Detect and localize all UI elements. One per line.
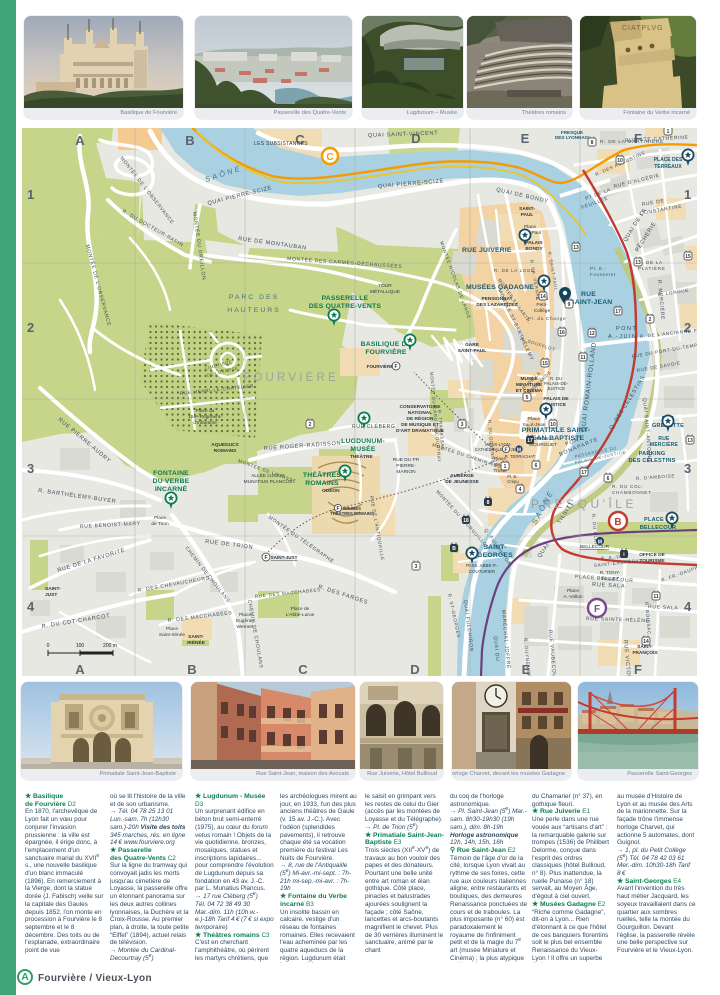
svg-text:4: 4 [519,487,522,493]
svg-text:1: 1 [684,187,691,202]
svg-text:de Trion: de Trion [151,521,169,527]
svg-text:Place de: Place de [291,606,310,612]
svg-text:10: 10 [550,422,556,428]
svg-text:AUBERGE: AUBERGE [450,473,475,479]
svg-text:9: 9 [568,302,571,308]
svg-text:SAINT-JEAN: SAINT-JEAN [570,299,612,306]
svg-text:A.-Vollon: A.-Vollon [563,594,583,600]
svg-text:3: 3 [415,564,418,570]
svg-text:15: 15 [685,254,691,260]
svg-text:OFFICE DE: OFFICE DE [639,552,665,558]
svg-text:TOUR: TOUR [378,283,392,289]
svg-text:18: 18 [463,518,469,524]
svg-text:ROMAINS: ROMAINS [305,480,339,487]
svg-text:JUST: JUST [45,592,57,598]
svg-text:L'Abbé-Larue: L'Abbé-Larue [286,612,315,618]
svg-text:1: 1 [27,187,34,202]
svg-text:E: E [521,131,530,146]
svg-text:4: 4 [684,599,692,614]
svg-text:PIERRE-: PIERRE- [396,463,416,469]
svg-text:ALLÉE LUCIUS: ALLÉE LUCIUS [251,472,285,479]
svg-text:JEAN-BAPTISTE: JEAN-BAPTISTE [528,435,585,442]
svg-text:Place: Place [239,612,251,618]
svg-text:SAINT-: SAINT- [483,544,506,551]
svg-text:A: A [75,133,85,148]
svg-text:SAINT-PAUL: SAINT-PAUL [458,348,486,354]
svg-text:LUGDUNUM-: LUGDUNUM- [341,438,385,445]
svg-text:1: 1 [504,464,507,470]
svg-text:MÉTALLIQUE: MÉTALLIQUE [370,288,400,295]
svg-text:A.-JUIN: A.-JUIN [608,334,637,340]
svg-text:6: 6 [607,476,610,482]
svg-text:14: 14 [540,294,546,300]
svg-text:17: 17 [581,470,587,476]
svg-text:PAUL: PAUL [521,212,534,218]
svg-text:BELLECOUR: BELLECOUR [580,544,610,550]
svg-text:CIATPLVG: CIATPLVG [622,25,664,32]
svg-text:4: 4 [27,599,35,614]
svg-text:PALAIS: PALAIS [525,240,543,246]
svg-text:DES QUATRE-VENTS: DES QUATRE-VENTS [309,303,381,310]
svg-text:DU VERBE: DU VERBE [153,478,190,485]
svg-text:17: 17 [527,438,533,444]
svg-text:200 m: 200 m [103,643,117,649]
svg-text:13: 13 [573,245,579,251]
svg-text:FOURVIÈRE: FOURVIÈRE [243,371,339,384]
svg-text:A: A [75,662,85,676]
svg-text:Place: Place [567,588,579,594]
svg-text:C: C [326,152,333,163]
svg-text:SAINT-JUST: SAINT-JUST [271,555,298,560]
svg-text:MERCIÈRE: MERCIÈRE [650,440,678,448]
svg-text:MINIATURE: MINIATURE [516,382,543,388]
svg-text:F: F [594,604,600,615]
svg-text:8: 8 [591,140,594,146]
svg-text:Place: Place [528,416,540,422]
svg-text:M: M [517,448,521,454]
svg-text:Petit-: Petit- [536,302,548,308]
svg-text:PARC DES: PARC DES [229,294,279,301]
svg-text:2: 2 [649,317,652,323]
svg-text:14: 14 [643,639,649,645]
svg-text:6: 6 [535,463,538,469]
svg-text:13: 13 [635,260,641,266]
svg-text:M: M [598,540,602,546]
svg-text:F: F [394,364,397,370]
svg-text:PASS. ABBÉ-P.-: PASS. ABBÉ-P.- [466,563,498,568]
svg-text:PLACE DES: PLACE DES [654,157,683,163]
svg-text:CATHÉDRALE-ST-JEAN: CATHÉDRALE-ST-JEAN [475,447,521,452]
svg-text:MUNATIUS PLANCUS: MUNATIUS PLANCUS [244,479,293,485]
svg-text:PONT: PONT [616,326,637,332]
svg-text:11: 11 [580,355,586,361]
svg-text:B: B [452,546,456,552]
svg-text:PLATIÈRE: PLATIÈRE [638,265,665,271]
svg-text:BELLECOUR: BELLECOUR [640,525,677,531]
svg-text:DES LAZARISTES: DES LAZARISTES [476,302,518,308]
svg-text:HAUTEURS: HAUTEURS [227,307,280,314]
svg-text:R. TONY-: R. TONY- [600,570,621,576]
svg-text:d'Infanterie: d'Infanterie [193,420,217,426]
svg-text:158ᵉ-Régiment-: 158ᵉ-Régiment- [188,414,222,420]
svg-text:1: 1 [667,129,670,135]
svg-text:SAINT-: SAINT- [188,634,204,640]
svg-text:RUE DU PR: RUE DU PR [393,457,420,463]
svg-text:12: 12 [589,331,595,337]
svg-text:Place: Place [166,626,178,632]
svg-text:RUE: RUE [581,291,596,298]
svg-text:5: 5 [526,395,529,401]
svg-text:DE JEUNESSE: DE JEUNESSE [445,479,479,485]
svg-text:MARION: MARION [396,469,416,475]
svg-text:Place du: Place du [196,408,215,414]
svg-text:TOLLET: TOLLET [601,576,619,582]
svg-text:Place: Place [154,515,166,521]
svg-text:FOURVIÈRE: FOURVIÈRE [367,362,394,369]
svg-text:BONDY: BONDY [525,246,543,252]
svg-text:16: 16 [559,330,565,336]
svg-text:GARE: GARE [465,342,480,348]
svg-text:10: 10 [617,158,623,164]
svg-text:C: C [298,662,308,676]
svg-text:Pl. E.-: Pl. E.- [590,266,607,271]
svg-text:F: F [504,448,507,454]
svg-text:LES SUBSISTANCES: LES SUBSISTANCES [254,141,308,147]
svg-text:JUSTICE: JUSTICE [547,386,565,391]
svg-text:NATIONAL: NATIONAL [408,410,432,416]
svg-text:FOURVIÈRE: FOURVIÈRE [365,347,407,356]
svg-text:3: 3 [461,422,464,428]
svg-text:THÉÂTRES: THÉÂTRES [303,470,341,479]
svg-text:D: D [410,662,419,676]
svg-text:F: F [264,555,267,561]
svg-text:PALAIS DE: PALAIS DE [543,396,569,402]
svg-text:R. DU COL-: R. DU COL- [612,484,644,489]
svg-text:2: 2 [27,320,34,335]
svg-text:SAINT-: SAINT- [519,206,535,212]
svg-text:Eugène-: Eugène- [236,618,255,624]
svg-text:B: B [187,662,196,676]
svg-text:Pl. du Change: Pl. du Change [528,316,566,321]
svg-text:TOURISME: TOURISME [639,558,665,564]
svg-text:CONSERVATOIRE: CONSERVATOIRE [400,404,442,410]
svg-text:PASSERELLE: PASSERELLE [322,295,369,302]
svg-text:DES LYONNAIS: DES LYONNAIS [555,135,589,140]
svg-text:R. DE LA LOGE: R. DE LA LOGE [494,268,535,273]
svg-text:17: 17 [615,309,621,315]
svg-text:GEORGES: GEORGES [477,552,513,559]
svg-text:11: 11 [653,594,659,600]
svg-text:TERREAUX: TERREAUX [654,164,682,170]
svg-text:8: 8 [487,500,490,506]
svg-text:13: 13 [687,438,693,444]
svg-text:RUE JUIVERIE: RUE JUIVERIE [462,247,512,254]
svg-text:Crépu: Crépu [507,479,519,484]
svg-text:Wernert: Wernert [237,624,255,630]
svg-text:100: 100 [76,643,85,649]
svg-text:15: 15 [542,361,548,367]
svg-text:DES CÉLESTINS: DES CÉLESTINS [628,456,675,464]
svg-text:B: B [185,133,194,148]
svg-text:DE MUSIQUE ET: DE MUSIQUE ET [401,422,439,428]
svg-text:Saint-Irénée: Saint-Irénée [159,632,185,638]
svg-text:FRANÇOIS: FRANÇOIS [632,650,658,656]
svg-text:SAINT-: SAINT- [45,586,61,592]
svg-text:F: F [634,662,642,676]
svg-text:F: F [336,506,339,512]
svg-text:3: 3 [684,461,691,476]
svg-text:ROMAINS: ROMAINS [214,448,237,454]
svg-text:FONTAINE: FONTAINE [153,470,189,477]
svg-text:D'ART DRAMATIQUE: D'ART DRAMATIQUE [396,428,445,434]
svg-text:PARKING: PARKING [639,451,666,457]
svg-text:R. TERRACHAT: R. TERRACHAT [505,454,536,459]
svg-text:Collège: Collège [534,308,551,314]
svg-text:AQUEDUCS: AQUEDUCS [211,442,239,448]
svg-text:MUSÉE: MUSÉE [350,444,375,453]
svg-text:Fousseret: Fousseret [590,272,616,277]
svg-text:PENSIONNAT: PENSIONNAT [481,296,512,302]
svg-text:CHAMBONNET: CHAMBONNET [612,490,652,495]
svg-text:PLACE: PLACE [644,517,664,523]
svg-text:B: B [614,517,621,528]
svg-text:MUSÉES GADAGNE: MUSÉES GADAGNE [466,282,534,291]
svg-text:RUE CLÉBERG: RUE CLÉBERG [352,423,396,430]
svg-text:R. DE LA MARTINIÈRE: R. DE LA MARTINIÈRE [600,138,664,145]
svg-text:2: 2 [309,422,312,428]
svg-text:COUTURIER: COUTURIER [469,569,495,574]
svg-text:0: 0 [47,643,50,649]
svg-text:3: 3 [27,461,34,476]
